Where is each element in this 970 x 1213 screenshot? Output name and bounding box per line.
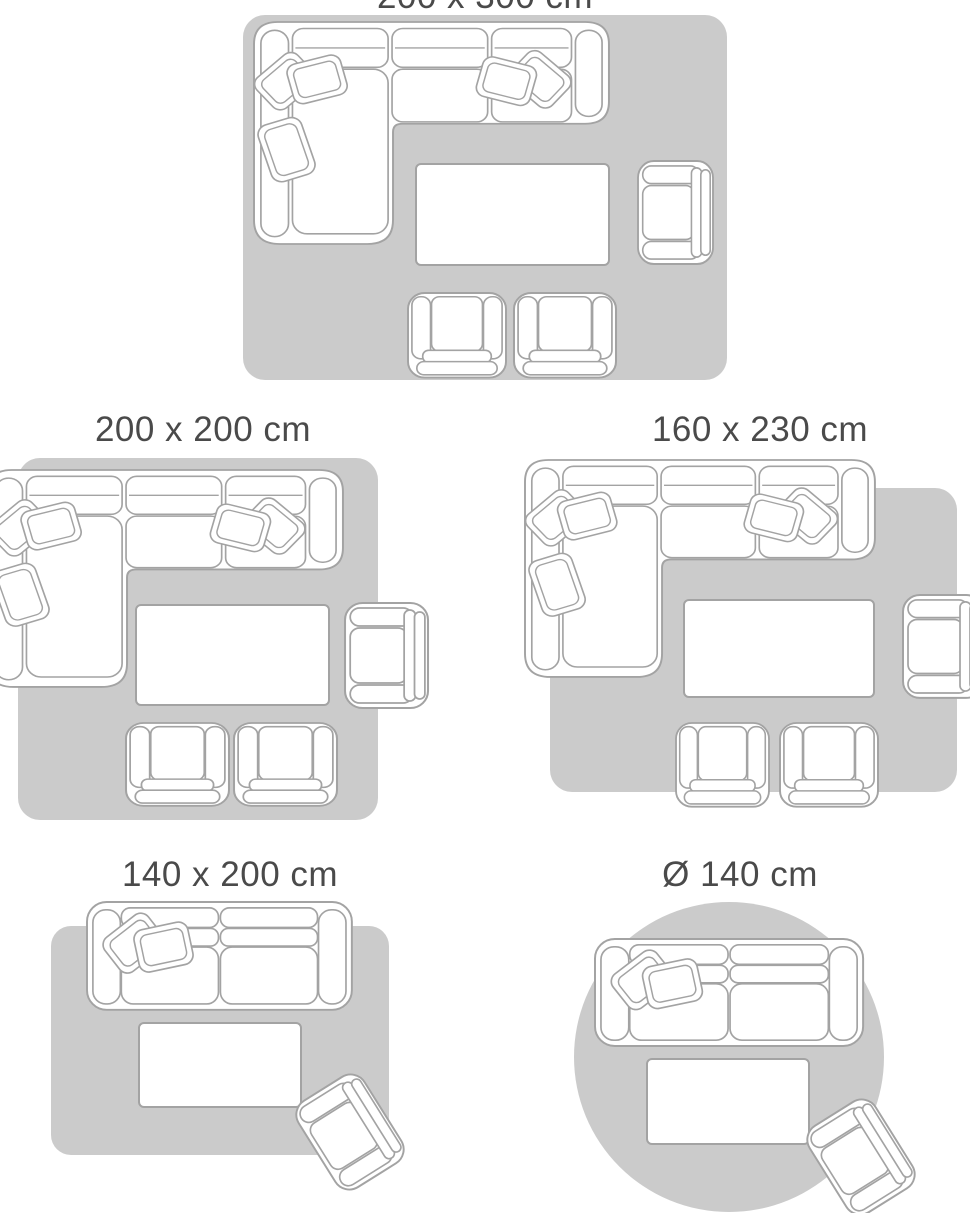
club-chair-right (514, 293, 616, 378)
coffee-table (416, 164, 609, 265)
coffee-table (684, 600, 874, 697)
layout-scene-160x230 (522, 460, 970, 807)
club-chair-right (780, 723, 878, 807)
layout-scene-200x300 (243, 15, 727, 380)
layout-scene-140x200 (51, 902, 410, 1196)
club-chair-left (126, 723, 229, 806)
coffee-table (647, 1059, 809, 1144)
armchair (638, 161, 713, 264)
rug-size-guide: 200 x 300 cm 200 x 200 cm 160 x 230 cm 1… (0, 0, 970, 1213)
loveseat-sofa (87, 902, 352, 1010)
club-chair-left (676, 723, 769, 807)
armchair (903, 595, 970, 698)
coffee-table (136, 605, 329, 705)
armchair (345, 603, 428, 708)
loveseat-sofa (595, 939, 863, 1046)
layout-scene-200x200 (0, 458, 428, 820)
club-chair-right (234, 723, 337, 806)
club-chair-left (408, 293, 506, 378)
coffee-table (139, 1023, 301, 1107)
layout-scene-diameter-140 (574, 902, 921, 1213)
size-guide-canvas (0, 0, 970, 1213)
